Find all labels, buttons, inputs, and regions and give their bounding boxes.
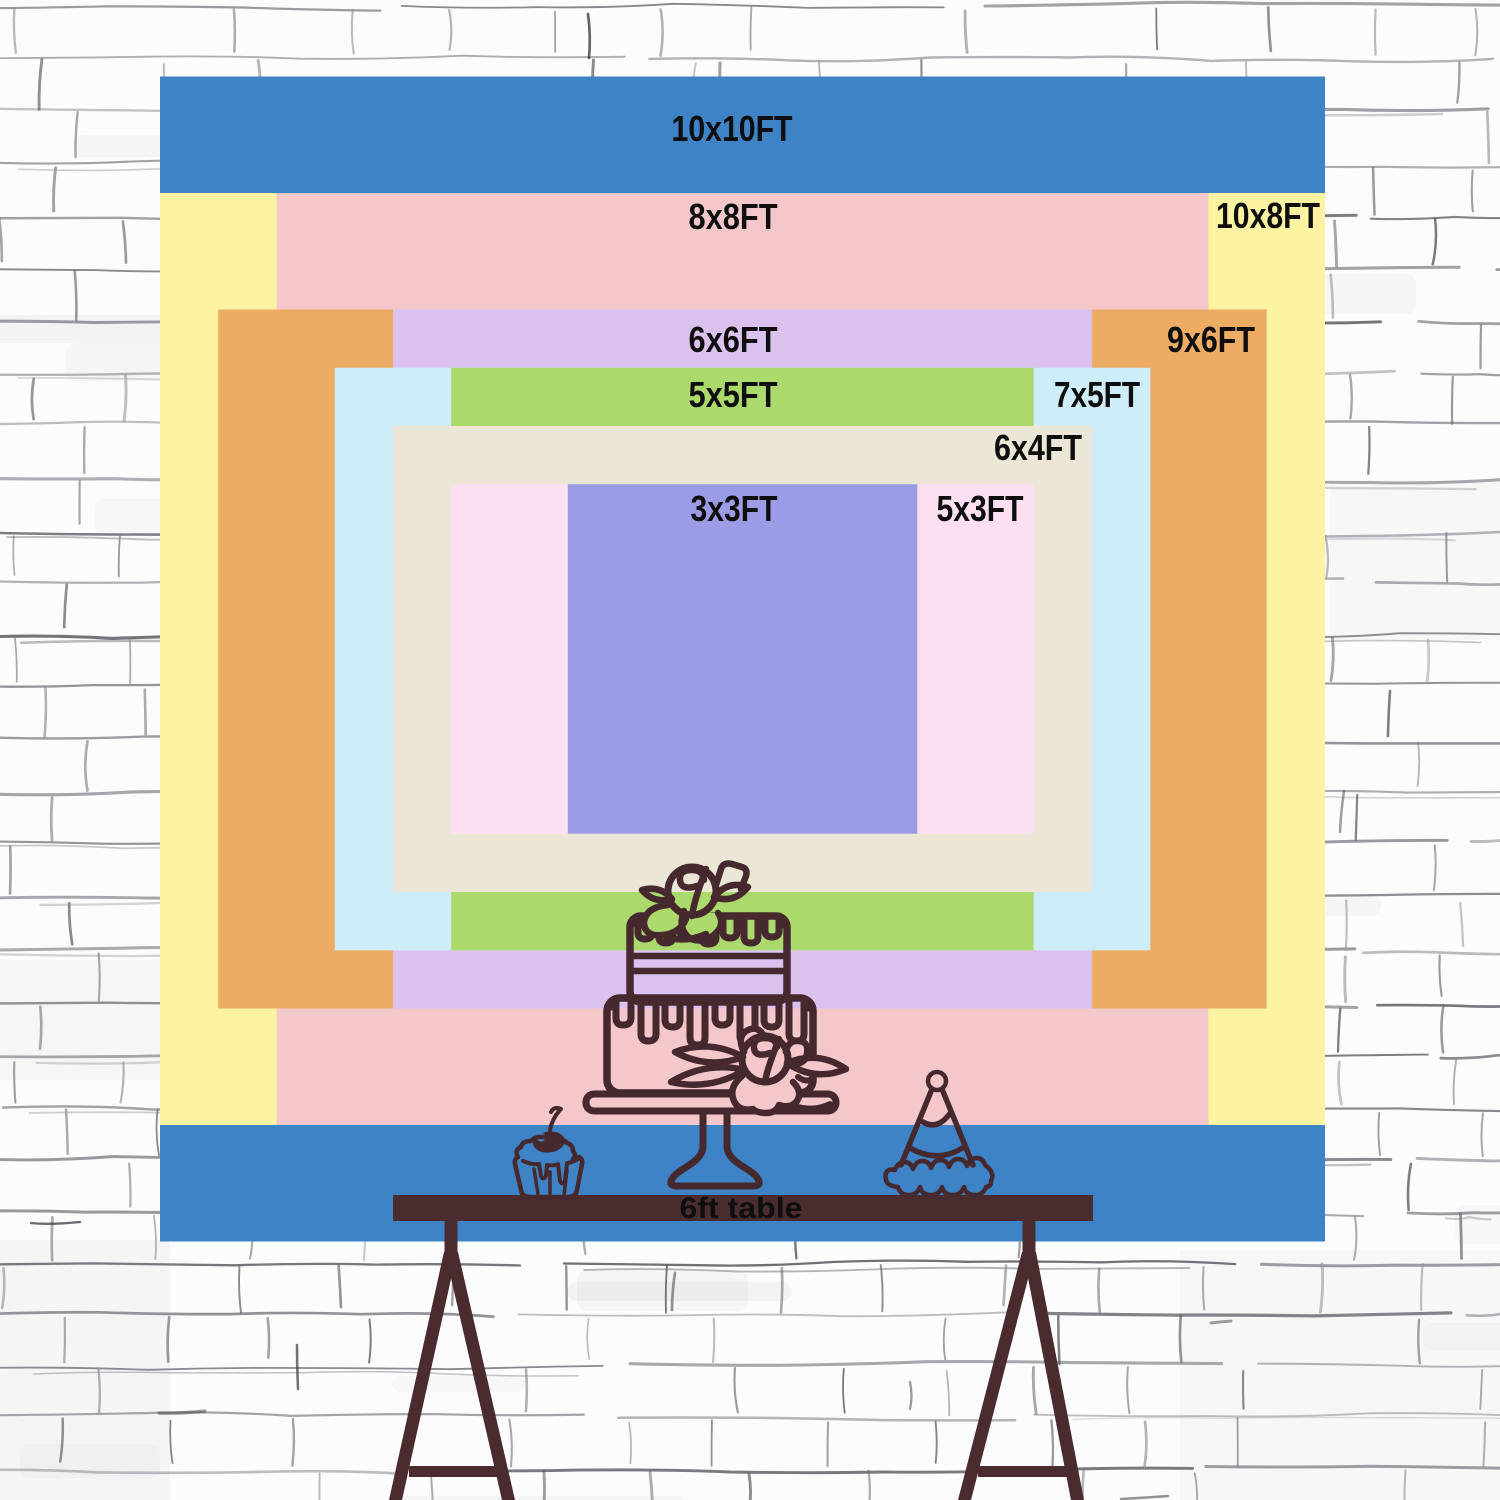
svg-text:5x3FT: 5x3FT (937, 488, 1024, 529)
svg-text:8x8FT: 8x8FT (689, 196, 778, 237)
svg-text:7x5FT: 7x5FT (1054, 374, 1140, 415)
svg-text:6ft table: 6ft table (680, 1192, 803, 1225)
svg-text:6x4FT: 6x4FT (994, 427, 1082, 468)
svg-text:9x6FT: 9x6FT (1167, 319, 1255, 360)
svg-text:5x5FT: 5x5FT (689, 374, 778, 415)
svg-text:6x6FT: 6x6FT (689, 319, 778, 360)
svg-text:3x3FT: 3x3FT (691, 488, 778, 529)
svg-text:10x10FT: 10x10FT (672, 108, 793, 149)
svg-text:10x8FT: 10x8FT (1216, 195, 1320, 236)
